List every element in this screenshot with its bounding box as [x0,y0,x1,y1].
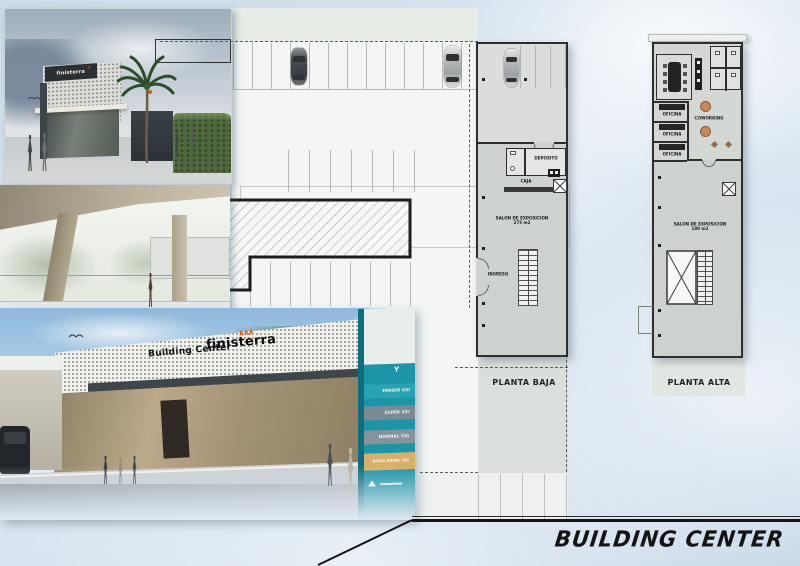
bird-icon [68,332,84,339]
pa-meeting-table [668,62,681,92]
pa-forecourt [652,358,745,396]
pb-forecourt [478,357,568,473]
pa-office-walls [654,101,687,103]
pylon-sign-fangio: FANGIO XXI [364,383,415,399]
title-rule-diagonal [318,519,413,566]
pb-stairs [518,249,538,306]
pb-elevator-icon [553,179,567,193]
pa-coworking-label: COWORKING [694,116,723,121]
pa-salon-label: SALON DE EXPOSICION 180 m2 [674,222,727,232]
pb-ingreso-label: INGRESO [488,272,509,277]
pylon-logo-letter: Y [394,366,399,374]
render-street: Building Center ∧∧∧ finisterra Y [0,308,415,520]
pa-round-table [700,126,711,137]
pa-office-walls [654,121,687,123]
entrance-brand-logo: ∧ [87,65,91,71]
pa-desk [659,144,685,150]
pa-wall [688,159,702,161]
pb-divider-wall [478,142,534,144]
pa-column-dot [658,206,661,209]
entrance-brand-text: finisterra [57,69,85,77]
pa-desk [659,124,685,130]
pa-oficina-label: OFICINA [663,132,682,137]
pylon-sign-super: SUPER XXI [364,405,415,421]
pb-column-dot [482,247,485,250]
pb-toilet-fixture [510,151,516,155]
pylon-sign-normal: NORMAL XXI [364,429,415,445]
parking-stalls-row1 [233,43,478,90]
pa-column-dot [658,309,661,312]
sheet-title: BUILDING CENTER [554,526,786,551]
street-door [160,399,189,458]
pa-meeting-room [656,54,692,100]
parking-row1-endline [233,89,478,90]
concrete-column [172,215,187,307]
pb-column-dot [524,78,527,81]
pa-column-dot [658,176,661,179]
pb-garage-car [504,49,519,87]
pb-column-dot [482,302,485,305]
suv-vehicle [0,426,30,474]
hatched-structure [224,197,414,293]
lower-dash [420,472,478,473]
title-rule-thin [412,516,800,517]
pa-office-walls [654,141,687,143]
pylon-footer-logo [368,480,376,486]
property-line-top [160,41,478,42]
pa-office-walls [654,160,687,162]
fuel-pylon: Y FANGIO XXI SUPER XXI NORMAL XXI ULTRA … [358,308,415,520]
pb-caja-label: CAJA [521,179,532,184]
pa-void-icon [666,250,697,305]
pb-divider-wall [554,142,566,144]
far-building [150,237,230,279]
pa-round-table [700,101,711,112]
sidewalk-band [232,8,478,42]
pb-counter [504,187,554,192]
presentation-sheet: DEPOSITO CAJA SALON DE EXPOSICION 273 m2… [0,0,800,566]
pa-oficina-label: OFICINA [663,152,682,157]
pa-plant [711,141,718,148]
pb-column-dot [482,78,485,81]
planta-baja-label: PLANTA BAJA [492,378,556,387]
pb-cabinet [548,169,560,177]
pylon-sign-diesel: ULTRA DIESEL XXI [364,452,415,471]
pa-oficina-label: OFICINA [663,112,682,117]
pa-column-dot [658,244,661,247]
pa-desk [659,104,685,110]
pb-toilet-fixture [510,166,515,171]
pa-plant [725,141,732,148]
hedge-wall [173,113,232,173]
pa-bathrooms [710,46,741,90]
property-line-left-pb [469,44,470,308]
pb-garage-stalls [520,46,566,88]
planta-alta-label: PLANTA ALTA [667,378,730,387]
pb-deposito-label: DEPOSITO [534,156,557,161]
plan-planta-alta: OFICINA OFICINA OFICINA COWORKING SALON … [652,42,743,358]
pb-column-dot [482,196,485,199]
parking-stalls-row2 [288,150,416,192]
parked-car-silver-1 [444,46,461,87]
glass-mullion-h [0,275,230,276]
pa-cabinet [695,58,702,90]
bird-icon [27,95,41,101]
street-asphalt [0,484,415,520]
render-entrance: finisterra ∧ [4,8,232,185]
plan-planta-baja: DEPOSITO CAJA SALON DE EXPOSICION 273 m2… [476,42,568,357]
pylon-top-white [364,308,415,365]
pb-salon-label: SALON DE EXPOSICION 273 m2 [496,216,549,226]
pa-column-dot [658,334,661,337]
title-rule-thick [412,519,800,522]
parking-stalls-bottom [478,474,568,519]
pa-roof-band [648,34,747,42]
entrance-glass [47,108,119,159]
pa-elevator-icon [722,182,736,196]
pa-balcony [638,306,653,334]
pb-toilet-wall [524,148,526,176]
pb-column-dot [482,324,485,327]
pa-stairs [697,250,713,305]
forecourt-dash [455,367,568,368]
pa-office-walls [687,101,689,161]
parked-car-dark [291,48,307,85]
pa-wall [716,159,741,161]
palm-tree [117,45,177,165]
